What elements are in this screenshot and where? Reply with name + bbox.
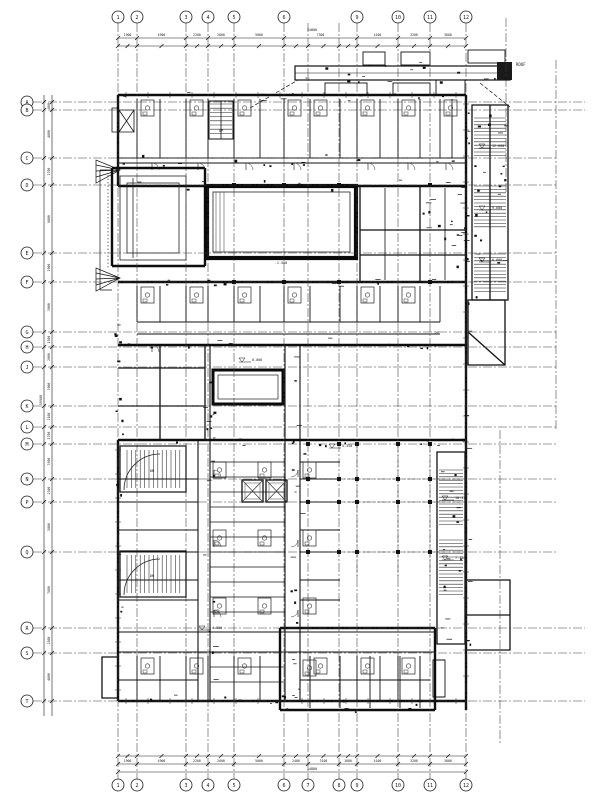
- grid-bubble-label: N: [25, 477, 28, 483]
- print-mark: [209, 631, 211, 633]
- sink-fixture: [192, 112, 196, 115]
- sink-fixture: [290, 112, 294, 115]
- toilet-fixture: [406, 293, 410, 297]
- print-mark: [486, 211, 487, 212]
- print-mark: [325, 154, 327, 155]
- grid-bubble-label: 7: [306, 783, 309, 789]
- sink-fixture: [192, 670, 196, 673]
- print-mark: [504, 179, 506, 181]
- toilet-fixture: [242, 664, 246, 668]
- print-mark: [474, 235, 477, 237]
- print-mark: [384, 65, 386, 67]
- stair-arc: [124, 559, 160, 595]
- sink-fixture: [305, 474, 309, 477]
- print-mark: [494, 78, 495, 80]
- dim-text-bottom: 2200: [193, 759, 201, 763]
- door-arc: [291, 470, 298, 477]
- dim-text-left: 4800: [47, 130, 51, 138]
- grid-bubble-label: 9: [355, 15, 358, 21]
- grid-bubble-label: 3: [184, 15, 187, 21]
- print-mark: [119, 341, 122, 343]
- toilet-fixture: [217, 536, 221, 540]
- toilet-fixture: [262, 536, 266, 540]
- print-mark: [210, 415, 212, 417]
- pool-level-label: -1.500: [275, 261, 287, 265]
- skylight: [401, 52, 430, 65]
- print-mark: [474, 165, 476, 167]
- print-mark: [358, 81, 360, 83]
- dim-overall-left: 59900: [39, 395, 43, 405]
- dimension-chains: 1900490022002600500073004100320036003480…: [39, 28, 468, 774]
- grid-bubble-label: L: [25, 425, 28, 431]
- print-mark: [444, 238, 446, 241]
- grid-bubble-label: Q: [25, 550, 28, 556]
- room-partitions: [118, 99, 464, 708]
- sink-fixture: [363, 670, 367, 673]
- print-mark: [121, 420, 123, 423]
- dim-text-top: 4100: [374, 33, 382, 37]
- print-mark: [427, 347, 428, 349]
- print-mark: [445, 565, 447, 567]
- print-mark: [142, 155, 144, 158]
- print-mark: [235, 160, 238, 163]
- column-mark: [232, 183, 236, 187]
- sink-fixture: [215, 542, 219, 545]
- sink-fixture: [290, 299, 294, 302]
- print-mark: [343, 700, 345, 703]
- print-mark: [452, 439, 454, 440]
- sink-fixture: [363, 299, 367, 302]
- print-mark: [123, 95, 126, 97]
- print-mark: [212, 399, 213, 401]
- sink-fixture: [143, 112, 147, 115]
- toilet-fixture: [242, 106, 246, 110]
- print-mark: [443, 587, 445, 588]
- print-mark: [269, 165, 271, 167]
- grid-bubble-label: M: [25, 442, 28, 448]
- stair-arc: [124, 454, 160, 490]
- grid-bubble-label: 12: [463, 15, 469, 21]
- print-mark: [451, 221, 453, 222]
- grid-bubble-label: F: [25, 280, 28, 286]
- door-arc: [368, 163, 375, 170]
- column-mark: [337, 500, 341, 504]
- elevation-text: 12.600: [492, 144, 504, 148]
- print-mark: [120, 494, 122, 497]
- roof-label: ROOF: [516, 62, 526, 67]
- door-arc: [246, 163, 253, 170]
- dim-text-left: 5000: [47, 303, 51, 311]
- sink-fixture: [260, 610, 264, 613]
- dim-text-top: 3200: [410, 33, 418, 37]
- grid-bubble-label: 8: [337, 783, 340, 789]
- print-mark: [276, 186, 278, 188]
- print-mark: [440, 81, 443, 83]
- print-mark: [478, 126, 481, 128]
- print-mark: [123, 163, 125, 164]
- column-mark: [355, 442, 359, 446]
- dim-overall-bottom: 34800: [307, 767, 317, 771]
- print-mark: [163, 165, 165, 166]
- dim-text-left: 2700: [47, 168, 51, 176]
- toilet-fixture: [406, 664, 410, 668]
- stair-up-label: UP: [219, 129, 223, 133]
- print-mark: [442, 95, 444, 97]
- print-mark: [294, 589, 297, 591]
- grid-bubble-label: J: [25, 365, 28, 371]
- sink-fixture: [404, 670, 408, 673]
- elevators: [242, 480, 287, 502]
- toilet-fixture: [318, 664, 322, 668]
- column-mark: [428, 183, 432, 187]
- sink-fixture: [260, 474, 264, 477]
- sink-fixture: [143, 670, 147, 673]
- column-mark: [306, 477, 310, 481]
- print-mark: [407, 345, 409, 347]
- print-mark: [292, 469, 295, 470]
- print-mark: [475, 214, 477, 217]
- print-mark: [115, 411, 117, 412]
- pool-steps: [216, 192, 224, 252]
- door-arc: [408, 163, 415, 170]
- print-mark: [389, 709, 392, 711]
- dim-text-bottom: 4900: [158, 759, 166, 763]
- print-mark: [294, 380, 296, 381]
- print-mark: [459, 570, 462, 572]
- print-mark: [211, 428, 213, 429]
- roof-canopy: [250, 50, 512, 108]
- column-mark: [282, 183, 286, 187]
- print-mark: [275, 701, 278, 703]
- sink-fixture: [363, 112, 367, 115]
- print-mark: [213, 601, 216, 603]
- column-mark: [428, 500, 432, 504]
- left-annex: [102, 657, 118, 698]
- grid-bubble-label: 5: [232, 15, 235, 21]
- print-mark: [120, 611, 122, 613]
- elevation-markers: 12.6009.6006.60010.1507.1500.0005.3504.5…: [199, 144, 504, 630]
- print-mark: [454, 474, 456, 476]
- toilet-fixture: [194, 293, 198, 297]
- print-mark: [464, 227, 467, 229]
- print-mark: [347, 80, 350, 83]
- print-mark: [420, 348, 423, 349]
- column-mark: [428, 442, 432, 446]
- sink-fixture: [305, 672, 309, 675]
- column-mark: [428, 477, 432, 481]
- print-mark: [438, 225, 441, 227]
- print-mark: [467, 215, 470, 217]
- print-mark: [452, 160, 455, 161]
- annotation-noise: [114, 62, 508, 713]
- grid-bubble-label: 3: [184, 783, 187, 789]
- print-mark: [224, 697, 226, 699]
- toilet-fixture: [145, 293, 149, 297]
- sink-fixture: [240, 670, 244, 673]
- print-mark: [408, 708, 411, 710]
- print-mark: [420, 443, 422, 445]
- column-mark: [282, 280, 286, 284]
- grid-bubble-label: 4: [206, 783, 209, 789]
- sink-fixture: [305, 610, 309, 613]
- print-mark: [187, 189, 190, 191]
- dim-text-left: 7600: [47, 586, 51, 594]
- print-mark: [303, 453, 306, 454]
- skylight: [363, 52, 385, 65]
- print-mark: [118, 533, 119, 534]
- central-atrium: [213, 370, 283, 404]
- column-mark: [355, 550, 359, 554]
- skylight: [468, 50, 505, 63]
- elevation-text: 5.350: [342, 444, 352, 448]
- print-mark: [188, 346, 190, 348]
- print-mark: [263, 164, 265, 166]
- floor-plan-svg: 1234569101112123456789101112ABCDEFGHJKLM…: [0, 0, 612, 804]
- sink-fixture: [215, 474, 219, 477]
- grid-bubble-label: P: [25, 500, 28, 506]
- stair-dn-label: DN: [150, 574, 154, 578]
- sink-fixture: [404, 299, 408, 302]
- print-mark: [166, 284, 168, 285]
- print-mark: [292, 93, 294, 95]
- dim-text-top: 2200: [193, 33, 201, 37]
- print-mark: [209, 382, 212, 384]
- print-mark: [467, 258, 469, 260]
- grid-bubble-label: B: [25, 108, 28, 114]
- toilet-fixture: [307, 604, 311, 608]
- print-mark: [319, 444, 321, 446]
- grid-bubble-label: 2: [135, 783, 138, 789]
- print-mark: [122, 433, 124, 435]
- print-mark: [423, 213, 425, 215]
- dim-text-top: 2600: [217, 33, 225, 37]
- sink-fixture: [143, 299, 147, 302]
- elevation-triangle: [442, 556, 448, 560]
- column-mark: [396, 477, 400, 481]
- print-mark: [214, 285, 217, 287]
- grid-bubble-label: 6: [282, 783, 285, 789]
- grid-bubble-label: 6: [282, 15, 285, 21]
- dim-text-left: 2000: [47, 353, 51, 361]
- grid-bubble-label: 10: [395, 15, 401, 21]
- dim-text-left: 3500: [47, 458, 51, 466]
- print-mark: [117, 360, 120, 362]
- column-mark: [306, 550, 310, 554]
- print-mark: [468, 112, 470, 113]
- dim-text-left: 800: [47, 103, 51, 109]
- dim-text-top: 5000: [255, 33, 263, 37]
- print-mark: [368, 65, 371, 66]
- print-mark: [457, 266, 459, 269]
- print-mark: [480, 239, 482, 241]
- toilet-fixture: [217, 604, 221, 608]
- column-mark: [355, 477, 359, 481]
- elevation-text: 7.150: [455, 556, 465, 560]
- print-mark: [499, 185, 502, 187]
- dim-text-bottom: 4100: [374, 759, 382, 763]
- print-mark: [325, 67, 328, 69]
- grid-bubble-label: K: [25, 404, 28, 410]
- column-mark: [337, 183, 341, 187]
- toilet-fixture: [318, 106, 322, 110]
- print-mark: [358, 159, 361, 161]
- grid-bubble-label: 11: [427, 783, 433, 789]
- stairs: [120, 101, 506, 597]
- toilet-fixture: [262, 604, 266, 608]
- toilet-fixture: [145, 664, 149, 668]
- right-annex: [466, 580, 510, 650]
- print-mark: [116, 484, 119, 486]
- dim-text-bottom: 2600: [217, 759, 225, 763]
- grid-bubble-label: 1: [116, 783, 119, 789]
- print-mark: [500, 173, 502, 174]
- print-mark: [477, 190, 480, 192]
- entrance-fan-canopies: [96, 160, 120, 291]
- elevation-text: 6.600: [492, 258, 502, 262]
- grid-bubble-label: T: [25, 699, 28, 705]
- print-mark: [505, 78, 507, 81]
- swimming-pool: [207, 186, 356, 258]
- toilet-fixture: [145, 106, 149, 110]
- print-mark: [462, 439, 464, 442]
- dim-text-left: 3900: [47, 383, 51, 391]
- grid-bubble-label: 1: [116, 15, 119, 21]
- toilet-fixture: [217, 468, 221, 472]
- print-mark: [284, 696, 286, 699]
- print-mark: [114, 333, 116, 335]
- toilet-fixture: [262, 468, 266, 472]
- floor-plan-page: 1234569101112123456789101112ABCDEFGHJKLM…: [0, 0, 612, 804]
- dim-text-bottom: 3100: [320, 759, 328, 763]
- print-mark: [428, 211, 430, 214]
- print-mark: [303, 164, 305, 166]
- column-mark: [337, 280, 341, 284]
- print-mark: [213, 475, 215, 478]
- column-mark: [428, 280, 432, 284]
- dim-text-bottom: 1900: [124, 759, 132, 763]
- column-mark: [428, 550, 432, 554]
- print-mark: [377, 282, 379, 284]
- print-mark: [290, 590, 292, 592]
- print-mark: [207, 280, 210, 283]
- grid-bubble-label: D: [25, 183, 28, 189]
- dim-text-left: 2500: [47, 637, 51, 645]
- dim-text-top: 1900: [124, 33, 132, 37]
- print-mark: [151, 347, 153, 349]
- sink-fixture: [240, 112, 244, 115]
- print-mark: [286, 708, 288, 710]
- grid-bubble-label: 12: [463, 783, 469, 789]
- sink-fixture: [404, 112, 408, 115]
- dim-text-left: 1700: [47, 432, 51, 440]
- elevation-triangle: [239, 358, 245, 362]
- print-mark: [468, 302, 470, 305]
- dim-text-left: 2900: [47, 264, 51, 272]
- door-swings: [152, 163, 453, 617]
- dim-text-top: 3600: [444, 33, 452, 37]
- grid-bubble-label: 11: [427, 15, 433, 21]
- dim-text-top: 4900: [158, 33, 166, 37]
- print-mark: [331, 189, 333, 192]
- print-mark: [457, 72, 460, 74]
- column-mark: [355, 500, 359, 504]
- column-mark: [306, 500, 310, 504]
- print-mark: [119, 398, 122, 401]
- print-mark: [206, 428, 208, 430]
- sink-fixture: [260, 542, 264, 545]
- print-mark: [418, 97, 419, 99]
- grid-bubble-label: H: [25, 345, 28, 351]
- sink-fixture: [316, 670, 320, 673]
- dim-text-left: 2300: [47, 487, 51, 495]
- print-mark: [150, 699, 152, 701]
- dim-text-left: 2100: [47, 413, 51, 421]
- column-mark: [337, 442, 341, 446]
- grid-bubble-label: 5: [232, 783, 235, 789]
- grid-bubble-label: 2: [135, 15, 138, 21]
- column-mark: [396, 442, 400, 446]
- column-mark: [337, 550, 341, 554]
- sink-fixture: [192, 299, 196, 302]
- print-mark: [470, 644, 472, 646]
- sink-fixture: [446, 112, 450, 115]
- print-mark: [423, 67, 426, 69]
- floor-label: 2F: [435, 330, 440, 335]
- print-mark: [467, 640, 470, 641]
- grid-bubble-label: E: [25, 251, 28, 257]
- grid-bubble-label: 10: [395, 783, 401, 789]
- print-mark: [296, 622, 298, 624]
- grid-bubble-label: C: [25, 156, 28, 162]
- print-mark: [213, 412, 216, 414]
- dim-text-top: 7300: [317, 33, 325, 37]
- print-mark: [394, 93, 396, 95]
- column-mark: [337, 477, 341, 481]
- elevation-text: 4.500: [212, 626, 222, 630]
- print-mark: [476, 296, 478, 298]
- print-mark: [435, 344, 437, 346]
- door-arc: [291, 610, 298, 617]
- print-mark: [117, 142, 118, 144]
- print-mark: [176, 441, 178, 443]
- print-mark: [503, 166, 505, 167]
- canopy-end-detail: [497, 62, 512, 80]
- window-ticks: [115, 92, 469, 704]
- print-mark: [489, 114, 492, 117]
- toilet-fixture: [292, 293, 296, 297]
- dim-text-left: 6800: [47, 215, 51, 223]
- dim-text-left: 1500: [47, 336, 51, 344]
- dim-text-bottom: 5000: [255, 759, 263, 763]
- print-mark: [497, 262, 500, 263]
- column-mark: [396, 500, 400, 504]
- print-mark: [282, 695, 284, 697]
- print-mark: [291, 163, 293, 165]
- print-mark: [416, 704, 418, 706]
- print-mark: [224, 283, 227, 286]
- elevation-triangle: [479, 144, 485, 148]
- print-mark: [468, 142, 470, 144]
- grid-bubble-label: S: [25, 651, 28, 657]
- print-mark: [294, 601, 296, 603]
- right-bay: [468, 300, 505, 365]
- elevation-triangle: [329, 444, 335, 448]
- toilet-fixture: [365, 106, 369, 110]
- dim-text-bottom: 3600: [444, 759, 452, 763]
- sink-fixture: [316, 112, 320, 115]
- toilet-fixture: [242, 293, 246, 297]
- print-mark: [212, 651, 214, 654]
